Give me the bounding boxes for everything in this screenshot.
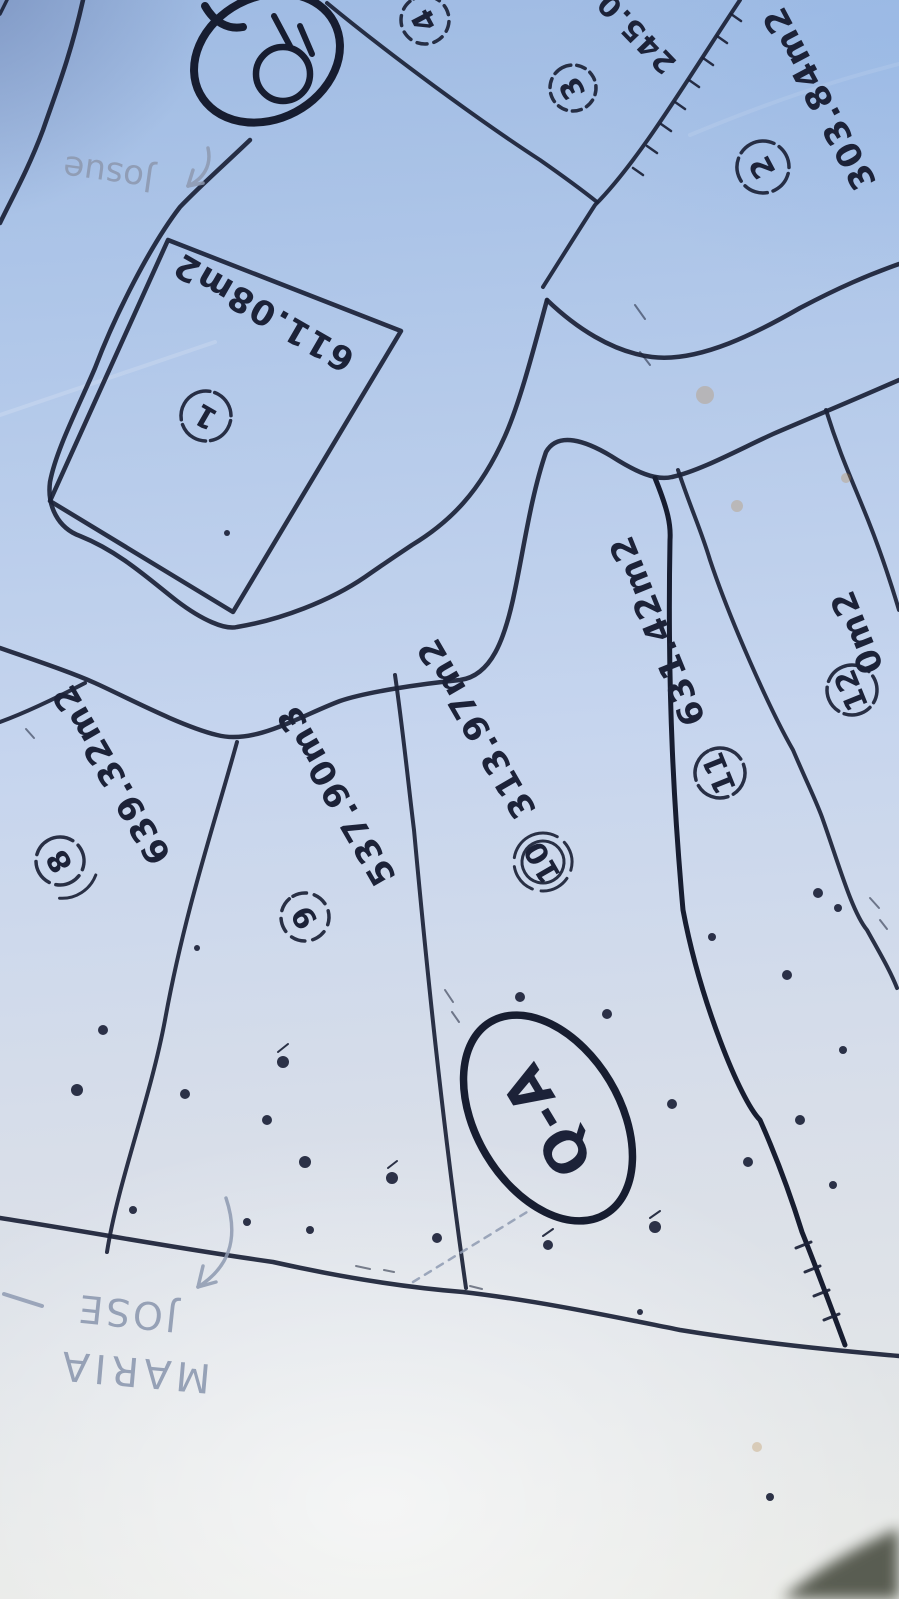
plat-map-drawing: Q-A 611.08m2 303.84m2 245.0 639.32m2 537…	[0, 0, 899, 1599]
svg-text:1: 1	[188, 396, 224, 437]
handwriting-maria-jose: JOSE MARIA	[4, 1198, 527, 1401]
lot-number-1: 1	[172, 382, 240, 450]
boundary-micro-marks	[356, 898, 887, 1289]
area-label-parcel-8: 639.32m2	[44, 676, 180, 871]
lot-number-10: 10	[503, 822, 582, 901]
lot-number-9: 9	[272, 884, 338, 950]
josue-name-text: Josue	[61, 147, 159, 200]
qa-block-ellipse: Q-A	[429, 985, 668, 1251]
svg-text:2: 2	[743, 150, 784, 185]
svg-text:9: 9	[285, 899, 326, 935]
area-label-parcel-1: 611.08m2	[166, 244, 361, 380]
lot-number-8: 8	[27, 828, 100, 906]
handwriting-josue: Josue	[61, 147, 209, 200]
paper-creases	[0, 64, 899, 415]
q-block-ellipse	[171, 0, 362, 148]
svg-text:10: 10	[517, 835, 568, 889]
maria-jose-arrow-icon	[198, 1198, 232, 1287]
area-label-parcel-11: 631.42m2	[601, 529, 714, 732]
svg-text:8: 8	[40, 843, 81, 879]
plat-map-photo: Q-A 611.08m2 303.84m2 245.0 639.32m2 537…	[0, 0, 899, 1599]
svg-text:4: 4	[405, 3, 446, 38]
edge-measure-label: 245.0	[590, 0, 683, 81]
lot-number-4: 4	[393, 0, 458, 52]
underline-stroke	[4, 1294, 42, 1306]
lot-number-11: 11	[687, 740, 752, 805]
jose-name-text: JOSE	[74, 1286, 181, 1341]
pencil-dash-line	[413, 1212, 527, 1282]
lot-number-2: 2	[728, 132, 798, 202]
maria-name-text: MARIA	[55, 1341, 212, 1400]
lot-number-3: 3	[542, 57, 604, 119]
corner-shadow	[782, 1528, 899, 1599]
area-label-parcel-10: 313.97m2	[409, 630, 545, 825]
area-labels: 611.08m2 303.84m2 245.0 639.32m2 537.90m…	[44, 0, 892, 893]
lot-numbers: 1 2 3 4 8 9 10 11	[27, 0, 884, 950]
area-label-parcel-9: 537.90m3	[269, 697, 405, 892]
svg-text:3: 3	[553, 71, 594, 106]
qa-block-label: Q-A	[489, 1052, 606, 1188]
